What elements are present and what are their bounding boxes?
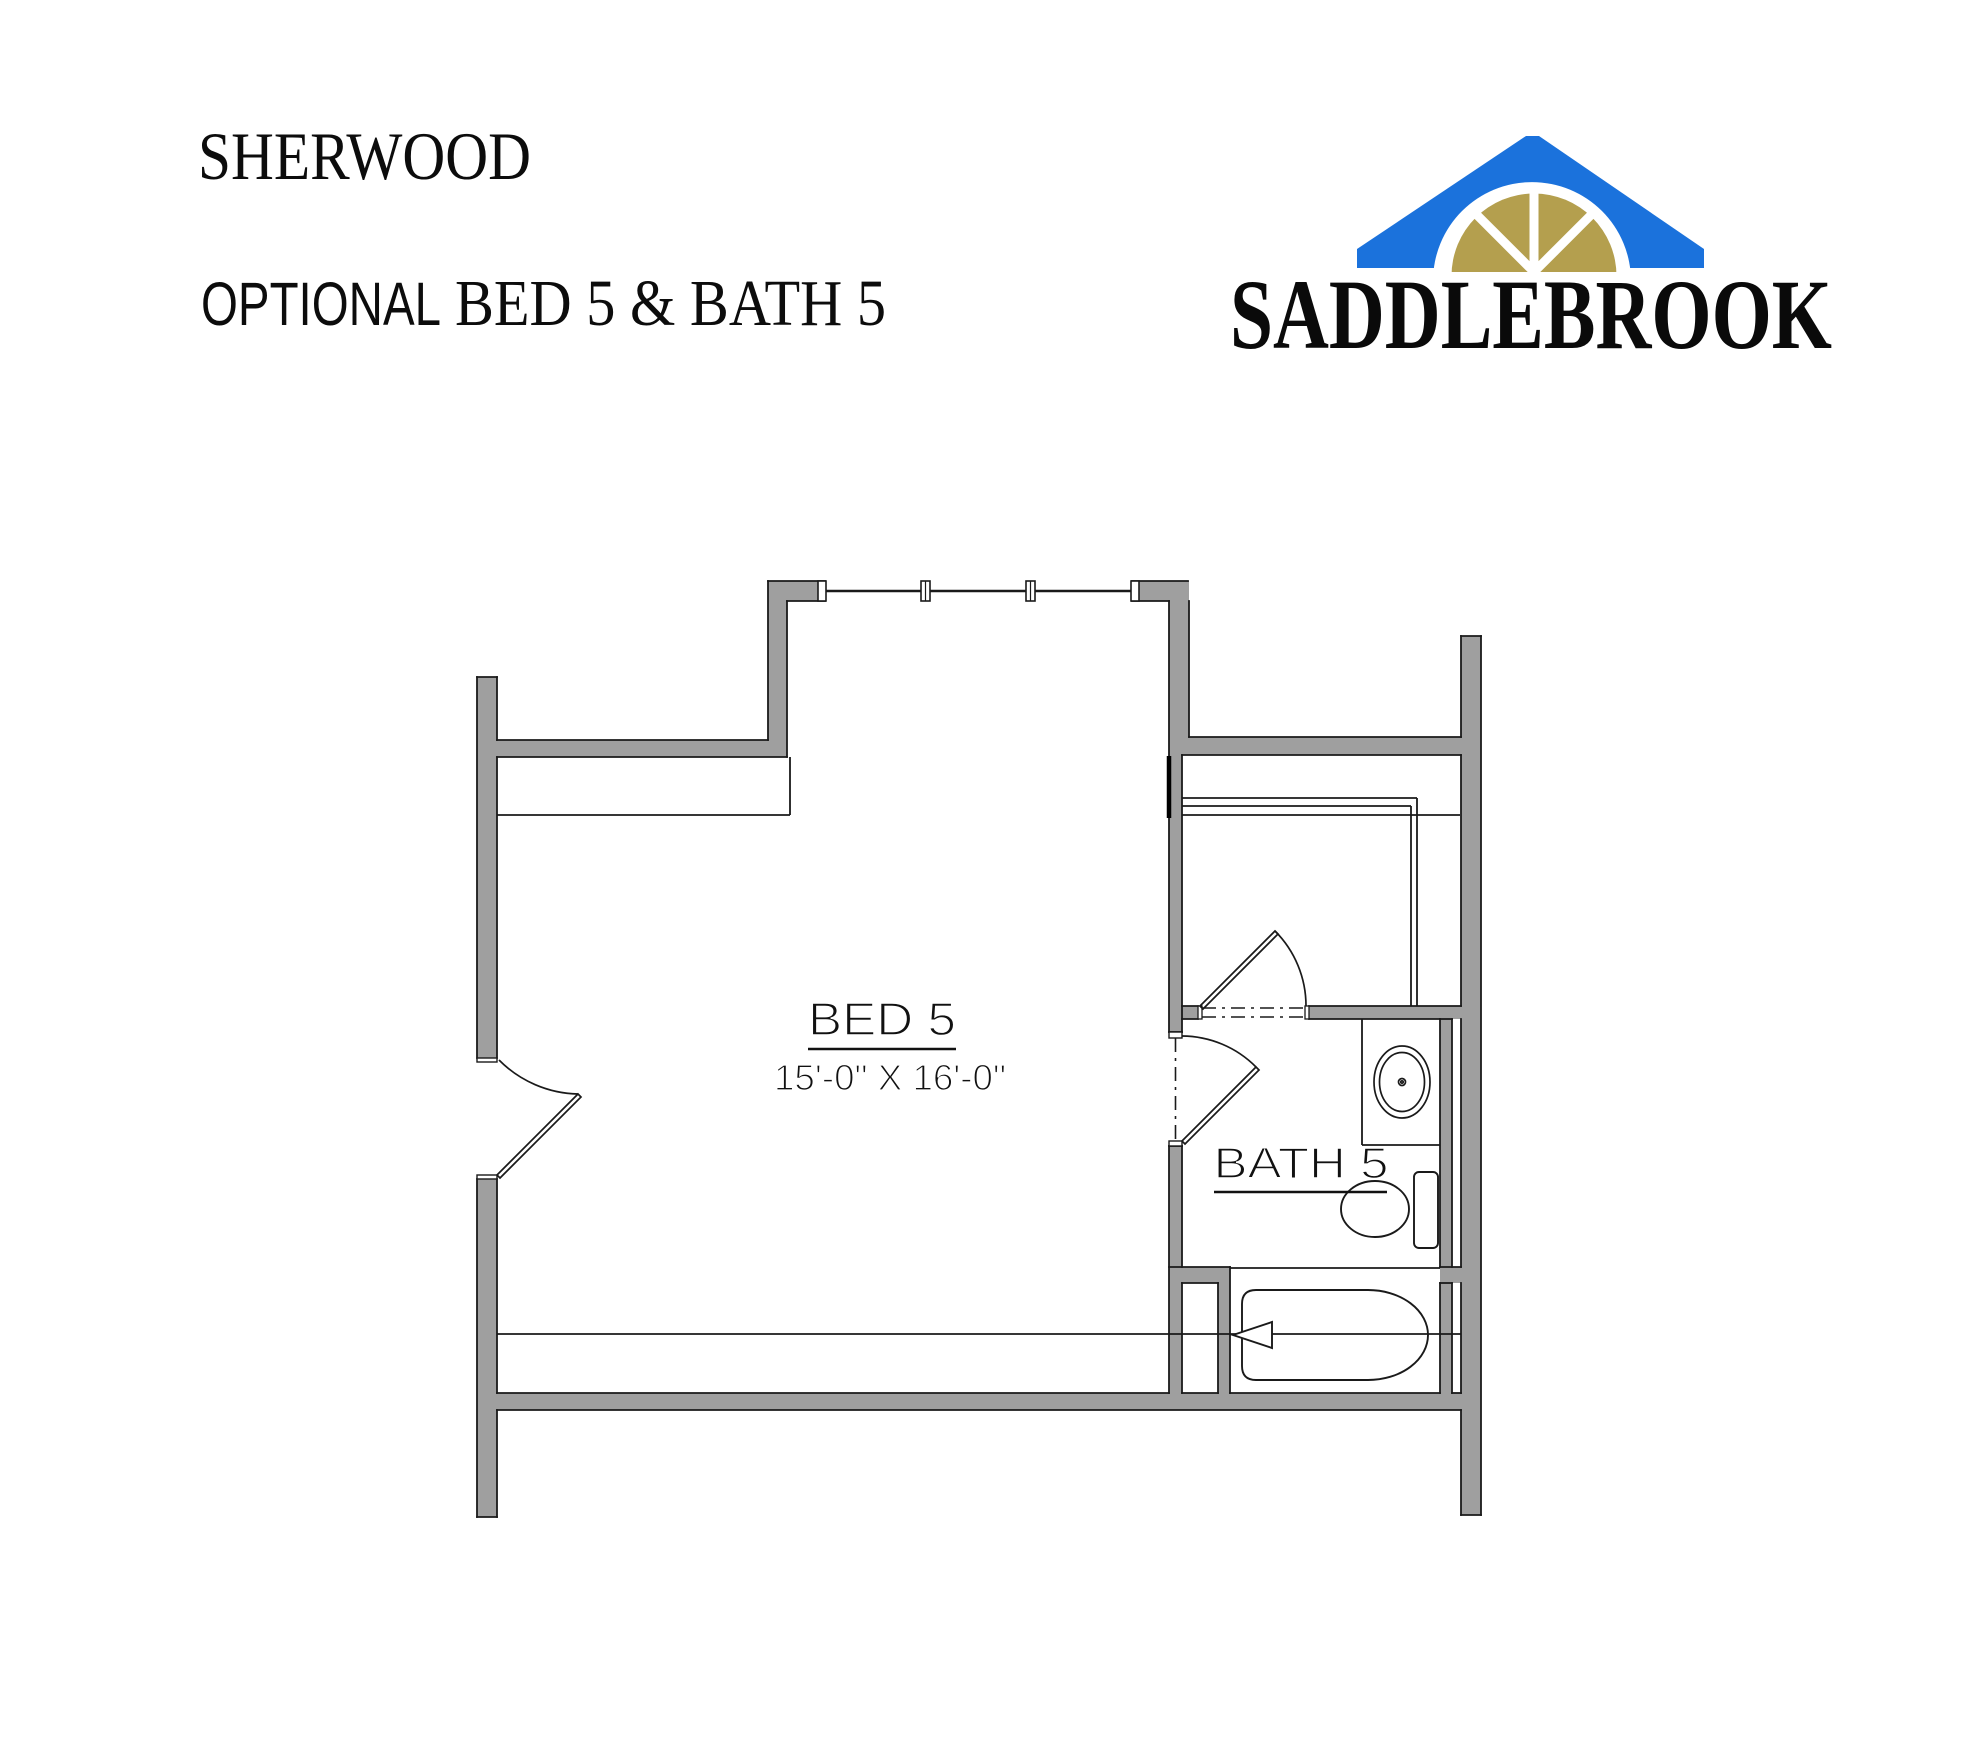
svg-text:BED 5 & BATH 5: BED 5 & BATH 5 xyxy=(455,267,886,340)
svg-text:SHERWOOD: SHERWOOD xyxy=(198,118,531,194)
svg-text:SADDLEBROOK: SADDLEBROOK xyxy=(1230,259,1832,370)
svg-text:OPTIONAL: OPTIONAL xyxy=(201,270,441,338)
svg-text:15'-0" X 16'-0": 15'-0" X 16'-0" xyxy=(774,1057,1006,1098)
svg-text:BED 5: BED 5 xyxy=(808,993,956,1045)
svg-text:BATH 5: BATH 5 xyxy=(1214,1139,1389,1188)
